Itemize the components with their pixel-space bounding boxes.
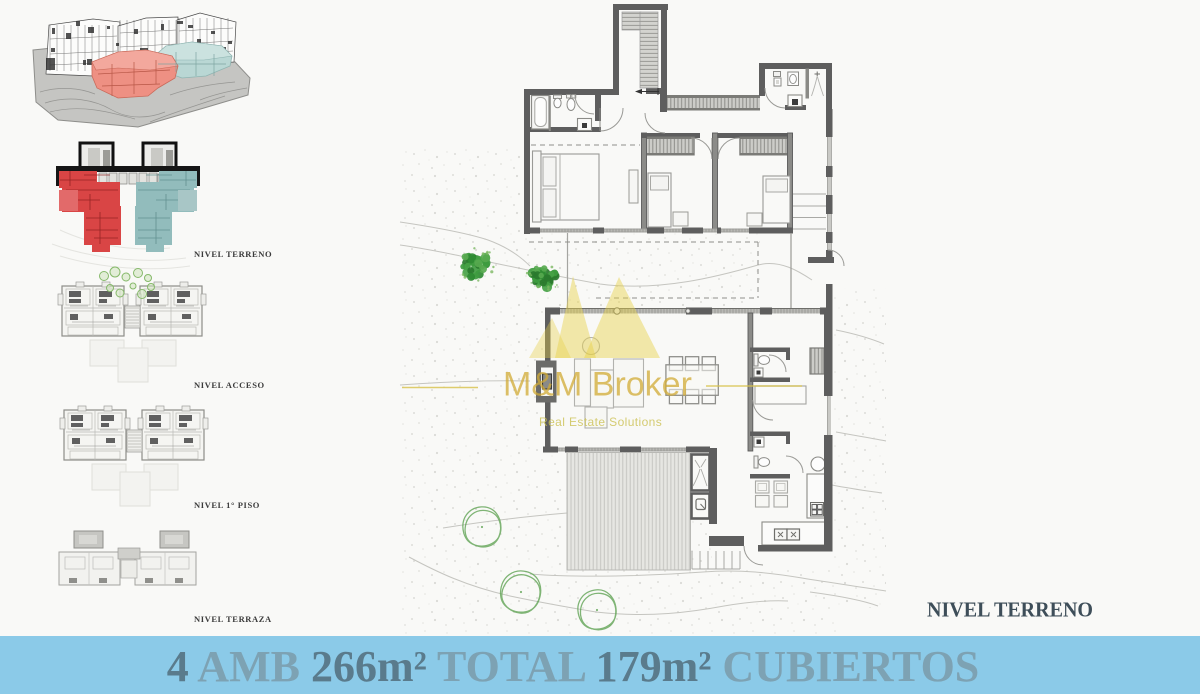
svg-text:M&M Broker: M&M Broker — [503, 366, 692, 404]
svg-text:4 AMB 266m² TOTAL 179m² CUBIER: 4 AMB 266m² TOTAL 179m² CUBIERTOS — [167, 642, 980, 691]
svg-text:NIVEL TERRENO: NIVEL TERRENO — [194, 249, 272, 259]
svg-text:NIVEL ACCESO: NIVEL ACCESO — [194, 380, 265, 390]
svg-text:NIVEL TERRENO: NIVEL TERRENO — [927, 598, 1093, 622]
svg-text:Real Estate Solutions: Real Estate Solutions — [539, 415, 662, 429]
svg-text:NIVEL TERRAZA: NIVEL TERRAZA — [194, 614, 272, 624]
svg-text:NIVEL 1° PISO: NIVEL 1° PISO — [194, 500, 260, 510]
